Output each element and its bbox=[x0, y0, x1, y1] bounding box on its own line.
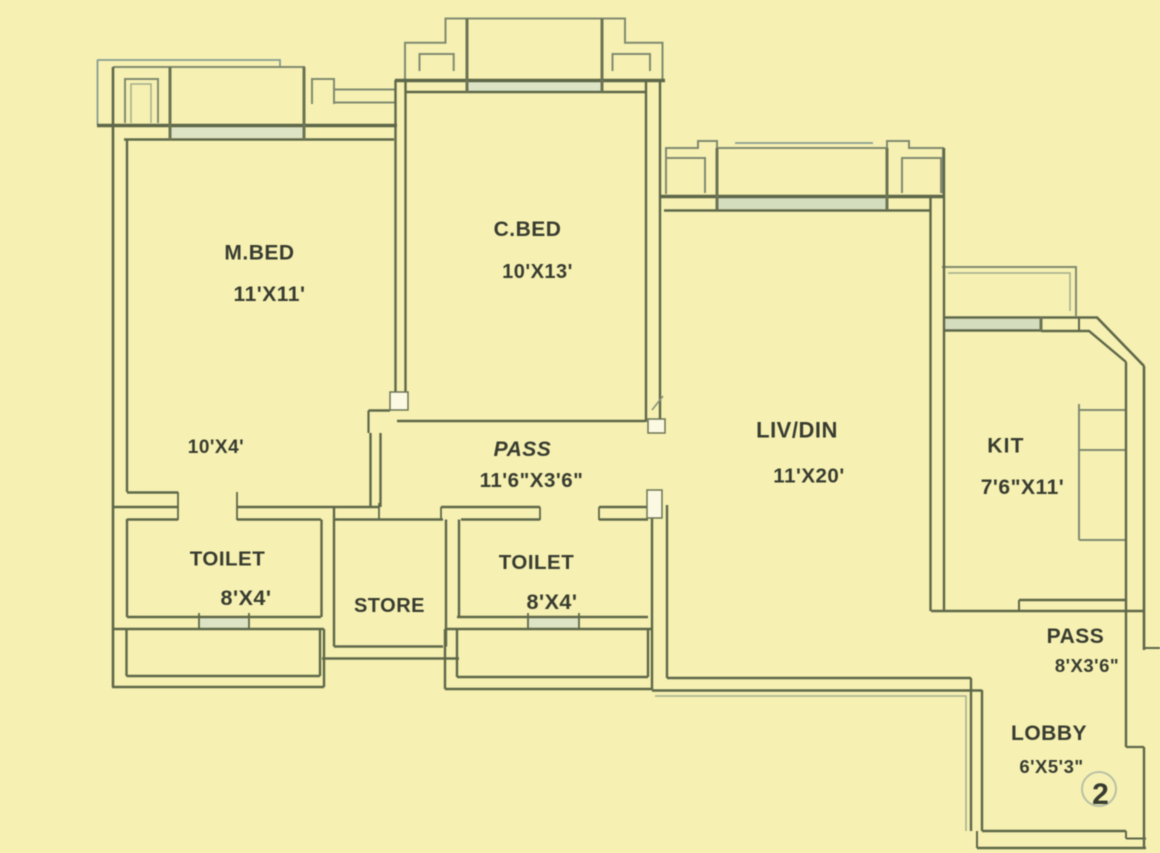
svg-text:11'6"X3'6": 11'6"X3'6" bbox=[480, 469, 584, 492]
svg-text:C.BED: C.BED bbox=[494, 218, 562, 241]
svg-text:PASS: PASS bbox=[494, 438, 552, 461]
svg-text:8'X4': 8'X4' bbox=[527, 590, 578, 614]
svg-text:6'X5'3": 6'X5'3" bbox=[1019, 756, 1083, 777]
svg-text:LOBBY: LOBBY bbox=[1011, 722, 1087, 745]
svg-text:KIT: KIT bbox=[987, 435, 1024, 458]
svg-text:11'X11': 11'X11' bbox=[234, 283, 306, 306]
svg-text:7'6"X11': 7'6"X11' bbox=[981, 476, 1065, 499]
svg-text:8'X4': 8'X4' bbox=[221, 586, 272, 610]
svg-text:STORE: STORE bbox=[354, 595, 425, 617]
svg-text:10'X13': 10'X13' bbox=[502, 261, 573, 283]
svg-text:LIV/DIN: LIV/DIN bbox=[756, 418, 838, 443]
svg-text:10'X4': 10'X4' bbox=[188, 437, 244, 458]
svg-text:PASS: PASS bbox=[1047, 625, 1105, 648]
svg-text:2: 2 bbox=[1092, 778, 1109, 811]
svg-text:M.BED: M.BED bbox=[224, 242, 294, 265]
svg-text:TOILET: TOILET bbox=[190, 548, 266, 571]
svg-text:TOILET: TOILET bbox=[499, 551, 575, 574]
svg-text:11'X20': 11'X20' bbox=[773, 465, 844, 488]
svg-text:8'X3'6": 8'X3'6" bbox=[1055, 655, 1119, 676]
